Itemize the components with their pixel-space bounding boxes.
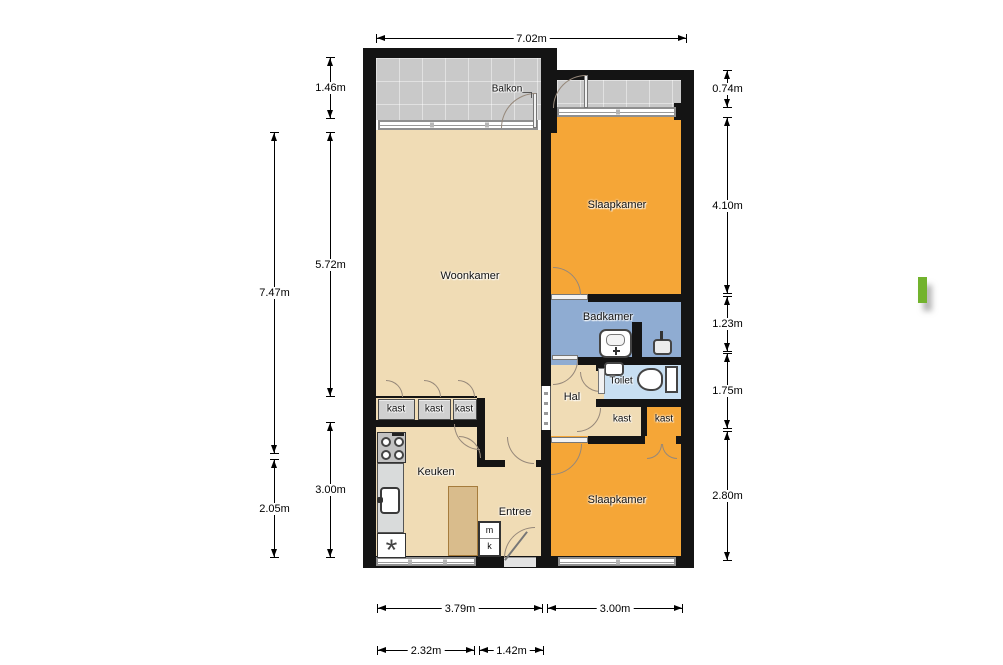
stove-burner [394,450,404,460]
washbasin-bowl [606,334,625,346]
dimension-bedroom-top-depth: 4.10m [723,118,732,293]
threshold-tick [544,412,548,415]
dimension-bedroom-bottom-depth: 2.80m [723,432,732,560]
stove-burner [394,437,404,447]
dimension-entree-width: 1.42m [480,646,543,655]
dimension-kitchen-width: 2.32m [378,646,474,655]
dimension-label: 2.80m [709,490,746,502]
closet-label-orange: kast [655,414,673,425]
wall-pier-bottom-3 [674,556,694,568]
washer-icon: * [386,534,398,567]
window-divider [443,559,447,564]
dimension-balcony-depth: 1.46m [326,58,335,118]
room-label-toilet: Toilet [609,376,632,387]
meter-closet-label-m: m [480,523,499,539]
dimension-label: 2.32m [408,645,445,657]
room-label-balkon: Balkon [492,84,523,95]
dimension-label: 7.47m [256,287,293,299]
wall-balcony-top-left [363,48,557,58]
dimension-bottom-left-width: 3.79m [378,604,542,613]
stove [377,432,406,463]
bathroom-washbasin [599,329,632,358]
window-divider [430,123,434,128]
wall-balcony-pier [541,48,557,133]
meter-closet: m k [478,521,501,557]
hall-doorway-threshold [541,386,551,430]
dimension-label: 3.79m [442,603,479,615]
wall-bathroom-stub [632,322,642,362]
dimension-label: 3.00m [312,484,349,496]
room-label-keuken: Keuken [417,466,454,478]
dimension-livingroom-depth: 5.72m [326,133,335,396]
room-label-entree: Entree [499,506,531,518]
closet-label-3: kast [455,404,473,415]
dimension-kitchen-depth: 3.00m [326,423,335,557]
dimension-label: 2.05m [256,503,293,515]
dimension-top-width: 7.02m [377,34,686,43]
floorplan-page: * m k Balko [0,0,1003,665]
dimension-label: 1.42m [493,645,530,657]
dimension-label: 3.00m [597,603,634,615]
wall-spine-lower [541,430,551,556]
window-divider [616,559,620,564]
dimension-label: 1.75m [709,385,746,397]
wall-toilet-bottom [596,399,681,407]
dimension-bottom-right-width: 3.00m [548,604,682,613]
dimension-hall-depth: 1.75m [723,354,732,428]
kitchen-sink [380,487,400,514]
toilet-bowl [637,368,663,391]
dimension-label: 1.23m [709,318,746,330]
toilet-hand-basin [604,362,624,376]
dimension-label: 7.02m [513,33,550,45]
wall-bedroom2-top-a [588,436,645,444]
window-bedroom-bottom [558,557,676,566]
closet-label-beige: kast [613,414,631,425]
wall-entree-top-b [536,460,541,467]
stove-burner [381,450,391,460]
balkon-leader-line [531,92,532,98]
stove-controls [392,433,404,436]
wall-balcony-top-right [541,70,694,80]
room-label-slaapkamer-bottom: Slaapkamer [588,494,647,506]
dimension-bathroom-depth: 1.23m [723,297,732,351]
stove-burner [381,437,391,447]
wall-bedroom-bathroom [588,294,681,302]
wall-spine-upper [541,130,551,386]
wall-pier-bottom-2 [536,556,558,568]
dimension-label: 4.10m [709,200,746,212]
toilet-cistern [665,366,678,393]
wall-bathroom-bottom [578,357,681,365]
kitchen-faucet [377,497,383,503]
room-label-hal: Hal [564,391,581,403]
wall-left [363,48,376,568]
window-divider [616,110,620,115]
window-divider [485,123,489,128]
door-leaf [598,368,605,394]
window-bedroom-top-balcony [557,107,676,117]
dimension-balcony-right-depth: 0.74m [723,71,732,107]
wall-right [681,70,694,568]
dimension-left-total-lower: 2.05m [270,460,279,557]
front-door-opening [504,557,536,567]
bathroom-small-sink [653,339,672,355]
threshold-tick [544,422,548,425]
closet-label-2: kast [425,404,443,415]
wall-entree-top-a [485,460,505,467]
window-divider [408,559,412,564]
door-leaf [551,437,588,443]
wall-closet-divider [641,407,647,436]
room-label-woonkamer: Woonkamer [440,270,499,282]
threshold-tick [544,392,548,395]
dimension-label: 1.46m [312,82,349,94]
closet-label-1: kast [387,404,405,415]
dimension-left-total-upper: 7.47m [270,133,279,453]
kitchen-counter-block [448,486,478,556]
threshold-tick [544,402,548,405]
room-label-badkamer: Badkamer [583,311,633,323]
bathroom-sink-faucet [660,331,663,340]
wall-pier-bottom-1 [476,556,504,568]
green-marker [918,277,927,303]
room-label-slaapkamer-top: Slaapkamer [588,199,647,211]
washing-machine: * [377,533,406,558]
meter-closet-label-k: k [480,539,499,554]
dimension-label: 5.72m [312,259,349,271]
wall-bedroom2-top-b [676,436,681,444]
washbasin-faucet [615,347,617,355]
dimension-label: 0.74m [709,83,746,95]
